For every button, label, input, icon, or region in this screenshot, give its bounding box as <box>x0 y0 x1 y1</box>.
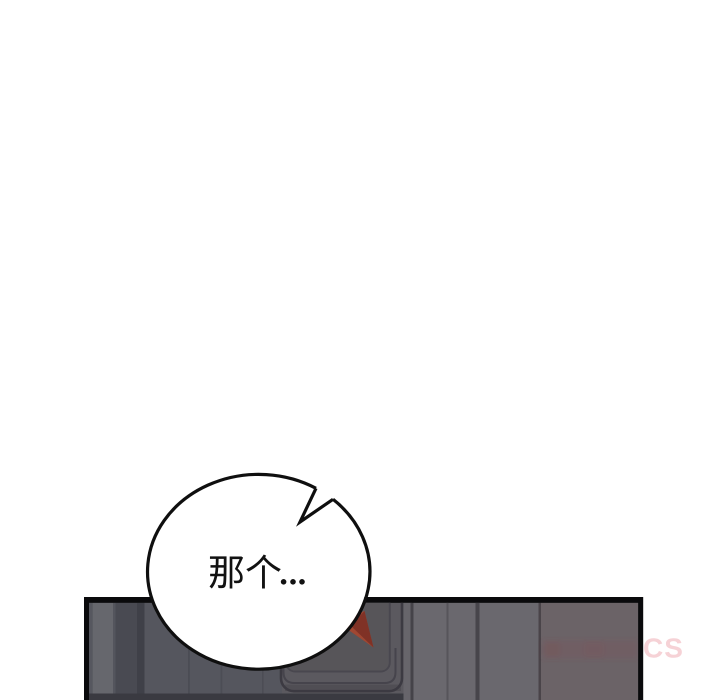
svg-text:CS: CS <box>643 633 684 664</box>
